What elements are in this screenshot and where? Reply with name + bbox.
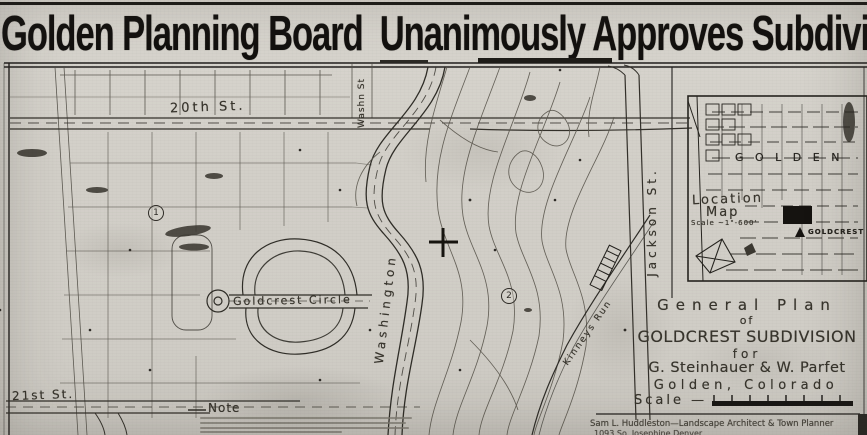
scan-edge-mark — [858, 414, 867, 435]
inset-city-label: G O L D E N — [735, 151, 843, 164]
title-block-line4: for — [632, 347, 862, 361]
credit-line2: 1093 So. Josephine Denver — [594, 429, 702, 435]
title-block-line6: Golden, Colorado — [632, 378, 860, 393]
street-label-20th: 20th St. — [170, 99, 246, 117]
scale-bar — [712, 401, 853, 406]
title-block-line1: General Plan — [632, 296, 862, 314]
credit-line1: Sam L. Huddleston—Landscape Architect & … — [590, 419, 833, 429]
street-label-washn: Washn St — [357, 48, 367, 128]
newspaper-clipping: Golden Planning Board Unanimously Approv… — [0, 0, 867, 435]
title-block-line5: G. Steinhauer & W. Parfet — [630, 360, 864, 376]
street-label-21st: 21st St. — [12, 387, 75, 403]
title-block-line3: GOLDCREST SUBDIVISION — [632, 327, 862, 346]
note-text-line — [200, 422, 406, 424]
note-text-line — [200, 417, 412, 419]
street-label-jackson: Jackson St. — [645, 162, 659, 282]
note-text-line — [200, 427, 409, 429]
title-block-scale-label: Scale — — [634, 393, 707, 408]
title-block-line2: of — [632, 314, 862, 327]
block-marker-2: 2 — [501, 288, 517, 304]
block-marker-1: 1 — [148, 205, 164, 221]
inset-title-line2: Map — [706, 205, 739, 220]
inset-site-rect — [783, 206, 812, 224]
street-label-goldcrest-circle: Goldcrest Circle — [233, 293, 352, 308]
inset-site-label: GOLDCREST — [808, 228, 864, 236]
note-text-line — [200, 431, 342, 433]
note-heading: Note — [208, 401, 240, 415]
inset-scale-label: Scale ~1"-600' — [691, 219, 757, 227]
